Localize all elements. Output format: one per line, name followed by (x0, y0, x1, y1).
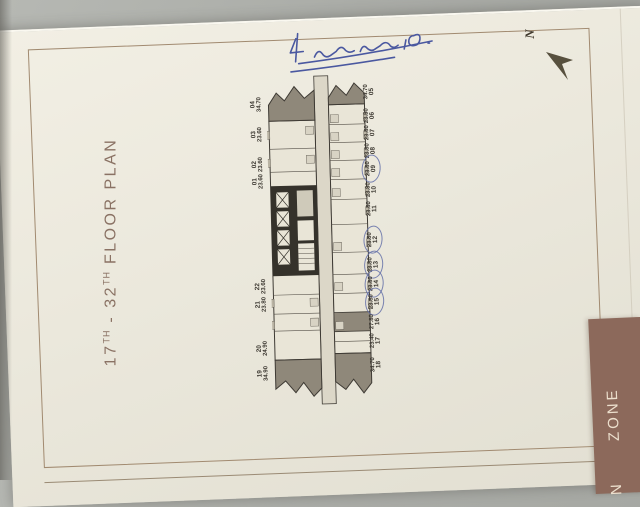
handwritten-note (281, 11, 468, 75)
unit-area: 34.70 (256, 97, 262, 112)
unit-number: 17 (376, 337, 382, 344)
unit-area: 23.60 (258, 174, 264, 189)
unit-label-06: 0623.50 (364, 108, 376, 123)
unit-label-18: 1834.70 (370, 357, 382, 372)
title-mid: - 32 (103, 285, 120, 330)
zone-tab-label: ZONE (604, 387, 623, 441)
unit-number: 18 (376, 361, 382, 368)
zone-tab-partial-letter: N (608, 481, 626, 496)
unit-number: 11 (372, 205, 378, 212)
unit-area: 23.80 (261, 297, 267, 312)
page-title: 17TH - 32TH FLOOR PLAN (102, 138, 121, 367)
floor-plan-drawing (266, 69, 375, 412)
unit-label-22: 2223.60 (255, 279, 267, 294)
unit-number: 10 (372, 186, 378, 193)
unit-area: 23.60 (257, 127, 263, 142)
unit-number: 16 (375, 318, 381, 325)
north-arrow-icon (543, 42, 579, 82)
photo-left-edge-shadow (0, 0, 12, 480)
floor-plan: 0434.700323.600223.600123.602223.602123.… (266, 69, 375, 412)
unit-label-05: 0534.70 (363, 84, 375, 99)
unit-label-02: 0223.60 (252, 157, 264, 172)
title-sup-1: TH (102, 330, 112, 344)
unit-number: 05 (369, 88, 375, 95)
unit-label-01: 0123.60 (252, 174, 264, 189)
unit-label-19: 1934.90 (257, 366, 269, 381)
unit-number: 06 (370, 112, 376, 119)
unit-label-21: 2123.80 (255, 297, 267, 312)
unit-area: 24.90 (263, 341, 269, 356)
photo-of-brochure-page: { "page": { "title": { "part1": "17", "s… (0, 0, 640, 480)
unit-number: 07 (370, 129, 376, 136)
unit-area: 23.60 (261, 279, 267, 294)
zone-tab: ZONE N (588, 317, 640, 494)
unit-label-16: 1627.80 (369, 314, 381, 329)
unit-number: 08 (371, 147, 377, 154)
unit-label-07: 0723.80 (364, 125, 376, 140)
unit-label-10: 1023.80 (366, 182, 378, 197)
title-number-1: 17 (103, 344, 120, 367)
unit-area: 34.90 (263, 366, 269, 381)
title-rest: FLOOR PLAN (103, 138, 120, 271)
unit-area: 23.60 (258, 157, 264, 172)
title-sup-2: TH (102, 271, 112, 285)
north-label: N (522, 29, 538, 38)
unit-label-04: 0434.70 (250, 97, 262, 112)
unit-label-20: 2024.90 (257, 341, 269, 356)
unit-label-17: 1723.40 (369, 333, 381, 348)
unit-label-11: 1123.80 (366, 201, 378, 216)
unit-label-03: 0323.60 (251, 127, 263, 142)
